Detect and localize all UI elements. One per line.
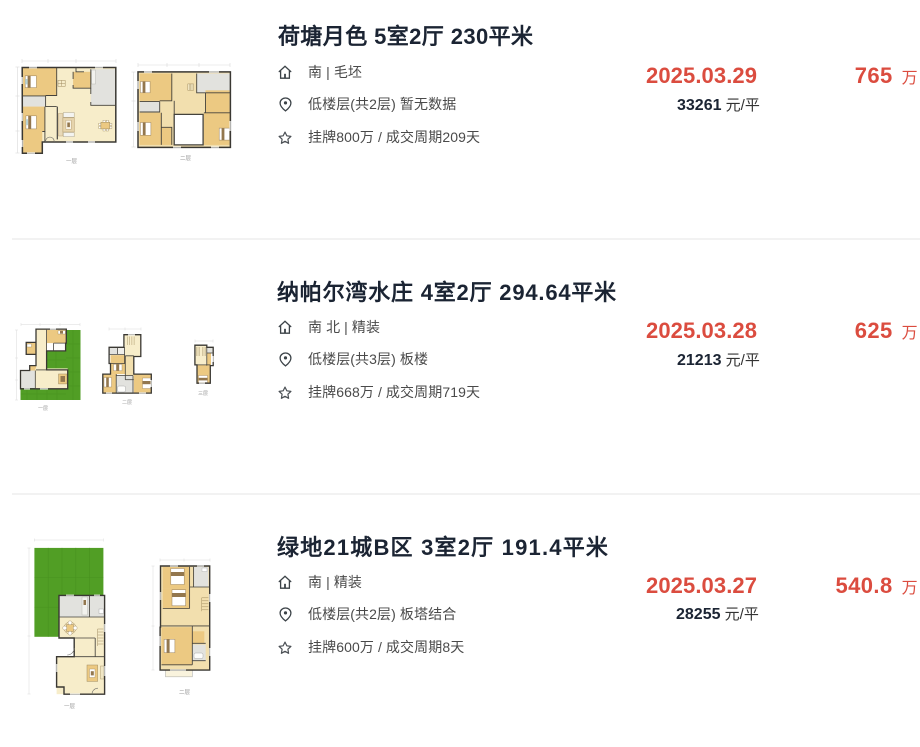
svg-text:三层: 三层 — [198, 391, 208, 397]
svg-text:一层: 一层 — [38, 406, 48, 412]
svg-text:二层: 二层 — [179, 689, 191, 696]
svg-text:一层: 一层 — [66, 158, 78, 164]
svg-text:二层: 二层 — [122, 400, 132, 406]
svg-text:一层: 一层 — [64, 703, 76, 710]
svg-text:二层: 二层 — [180, 155, 192, 162]
